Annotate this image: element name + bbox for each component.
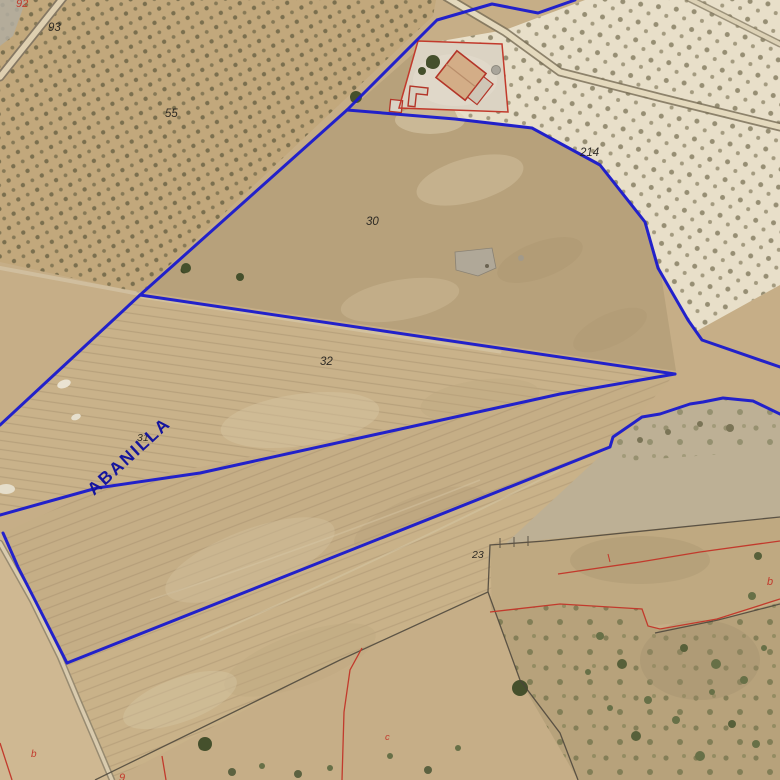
parcel-number-93: 93: [48, 22, 61, 34]
parcel-number-55: 55: [165, 108, 178, 120]
orthophoto-map: 92 93 55 30 214 32 31 23 ABANILLA b 9 c …: [0, 0, 780, 780]
parcel-number-23: 23: [471, 549, 484, 561]
parcel-number-30: 30: [366, 216, 379, 228]
parcel-number-214: 214: [579, 147, 599, 159]
red-label-9: 9: [119, 772, 125, 780]
water-tank: [492, 66, 501, 75]
aerial-map-canvas[interactable]: 92 93 55 30 214 32 31 23 ABANILLA b 9 c …: [0, 0, 780, 780]
red-label-92: 92: [16, 0, 28, 10]
red-label-c: c: [385, 732, 390, 743]
red-label-b-left: b: [31, 749, 37, 760]
basemap-fields: [0, 0, 780, 780]
parcel-number-32: 32: [320, 356, 333, 368]
red-label-b-right: b: [767, 576, 773, 588]
